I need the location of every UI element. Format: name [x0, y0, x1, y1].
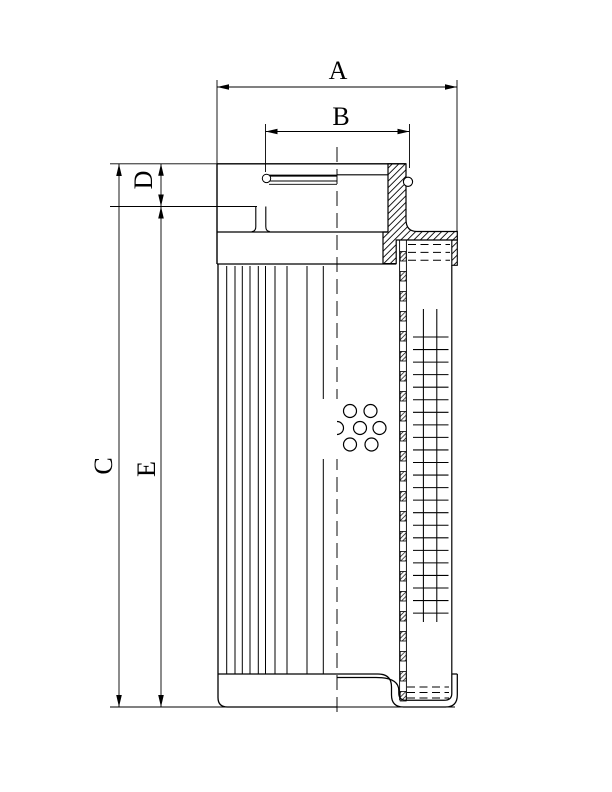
core-segment — [400, 532, 406, 542]
o-ring-icon — [403, 177, 412, 186]
core-segment — [400, 592, 406, 602]
dim-label-c: C — [89, 457, 118, 474]
core-segment — [400, 392, 406, 402]
core-segment — [400, 272, 406, 282]
core-segment — [400, 672, 406, 682]
core-segment — [400, 292, 406, 302]
core-segment — [400, 572, 406, 582]
core-segment — [400, 472, 406, 482]
core-segment — [400, 512, 406, 522]
core-segment — [400, 412, 406, 422]
core-segment — [400, 372, 406, 382]
dim-label-e: E — [132, 461, 161, 477]
core-segment — [400, 452, 406, 462]
core-segment — [400, 552, 406, 562]
handle-end-icon — [262, 174, 270, 182]
page-background — [0, 0, 612, 792]
shell-wall-section-hatched — [452, 240, 458, 265]
drawing-page: A B C D E — [0, 0, 612, 792]
core-segment — [400, 492, 406, 502]
core-segment — [400, 432, 406, 442]
perforation-holes — [321, 399, 392, 459]
core-segment — [400, 352, 406, 362]
core-segment — [400, 252, 406, 262]
core-segment — [400, 632, 406, 642]
dim-label-a: A — [329, 56, 348, 85]
dim-label-d: D — [129, 171, 158, 190]
filter-element-technical-drawing: A B C D E — [0, 0, 612, 792]
core-segment — [400, 652, 406, 662]
core-segment — [400, 312, 406, 322]
dim-label-b: B — [332, 102, 349, 131]
core-segment — [400, 332, 406, 342]
core-segment — [400, 612, 406, 622]
